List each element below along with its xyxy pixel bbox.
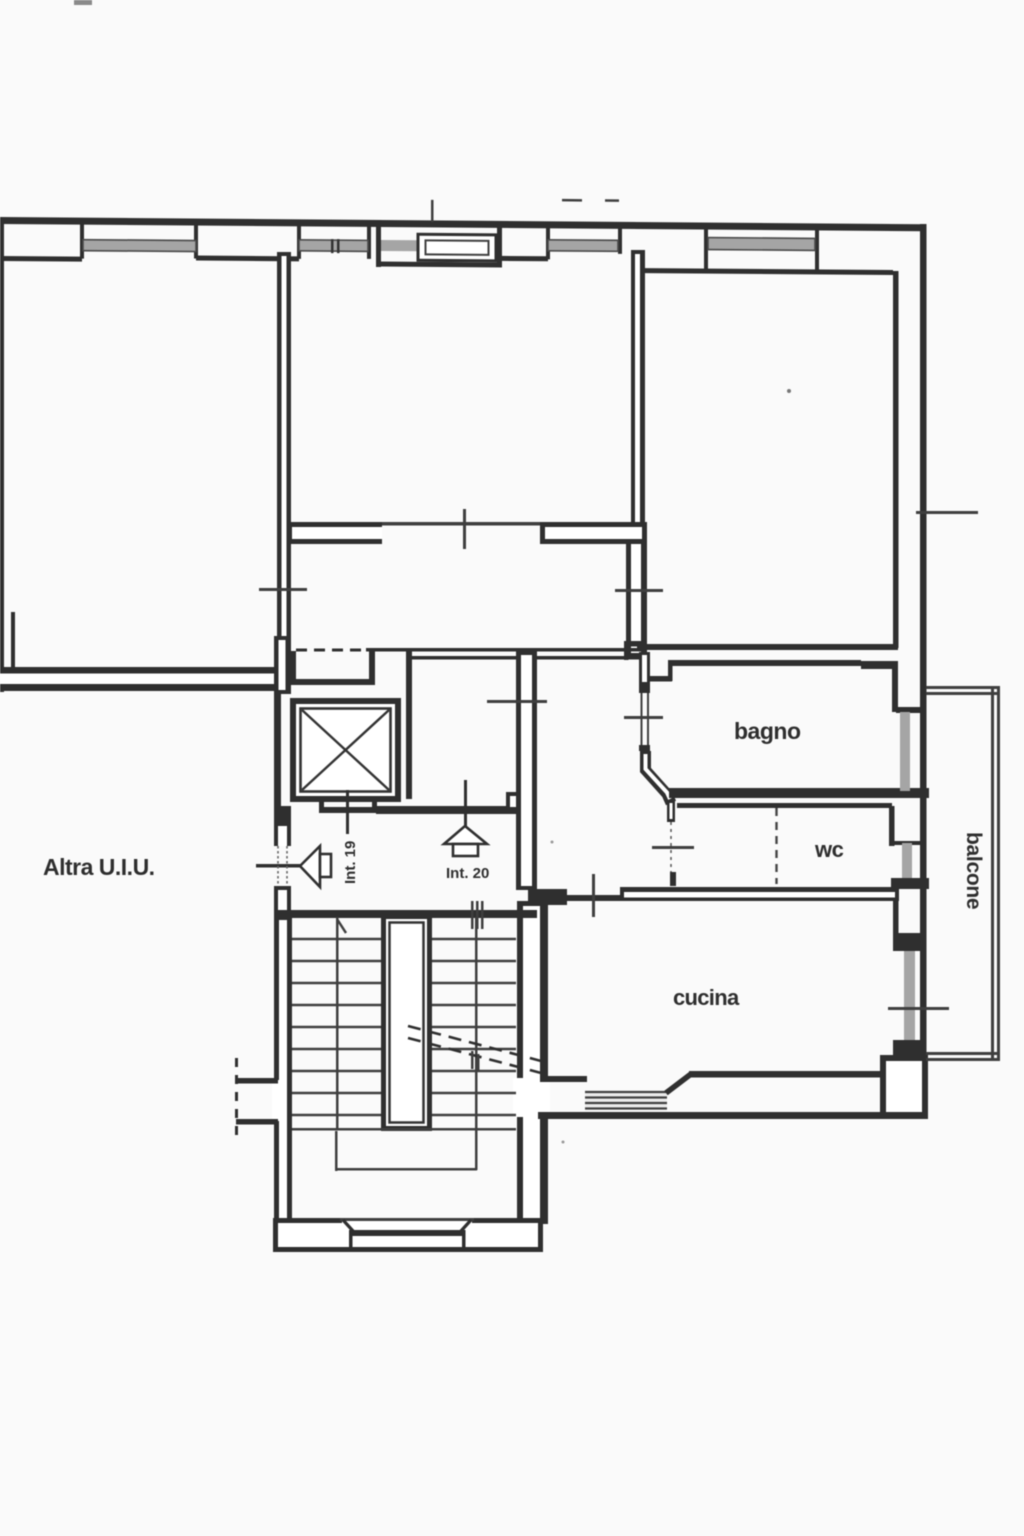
svg-text:cucina: cucina [673, 985, 740, 1010]
svg-text:Altra U.I.U.: Altra U.I.U. [43, 854, 155, 880]
svg-text:Int. 19: Int. 19 [342, 841, 359, 884]
svg-text:balcone: balcone [962, 832, 985, 909]
svg-text:wc: wc [814, 837, 844, 862]
svg-text:bagno: bagno [734, 718, 801, 744]
svg-text:Int. 20: Int. 20 [446, 865, 489, 882]
